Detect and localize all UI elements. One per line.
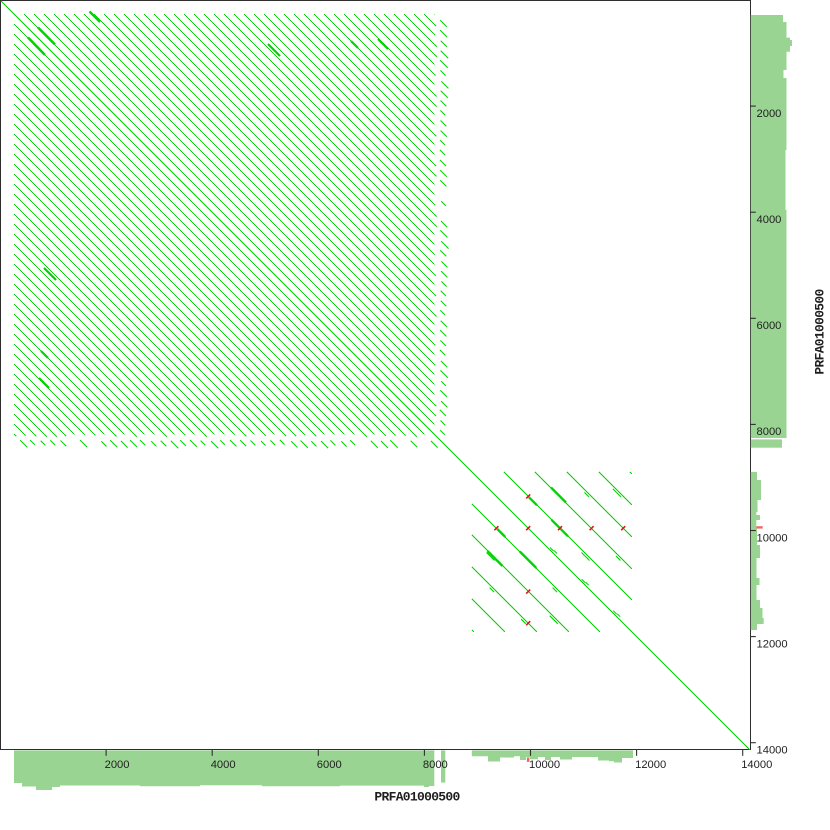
svg-text:8000: 8000 xyxy=(757,426,782,438)
svg-text:4000: 4000 xyxy=(757,214,782,226)
svg-text:12000: 12000 xyxy=(757,638,788,650)
svg-text:8000: 8000 xyxy=(423,759,448,771)
svg-text:6000: 6000 xyxy=(317,759,342,771)
svg-text:10000: 10000 xyxy=(529,759,560,771)
svg-text:12000: 12000 xyxy=(635,759,666,771)
svg-text:2000: 2000 xyxy=(105,759,130,771)
svg-text:14000: 14000 xyxy=(757,745,788,757)
svg-text:2000: 2000 xyxy=(757,108,782,120)
svg-text:14000: 14000 xyxy=(741,759,772,771)
svg-text:4000: 4000 xyxy=(211,759,236,771)
svg-text:10000: 10000 xyxy=(757,532,788,544)
svg-text:PRFA01000500: PRFA01000500 xyxy=(374,790,460,805)
svg-text:PRFA01000500: PRFA01000500 xyxy=(812,288,827,374)
svg-text:6000: 6000 xyxy=(757,320,782,332)
